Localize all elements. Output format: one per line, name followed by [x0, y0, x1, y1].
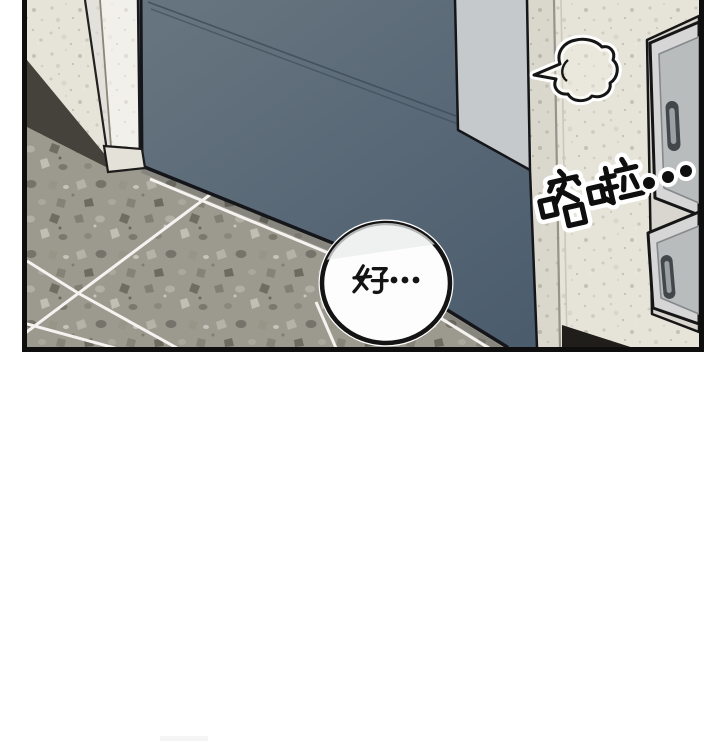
comic-panel-art: 喀啦… 好…	[0, 0, 720, 742]
drawer-handle-icon	[665, 101, 681, 152]
comic-page: 喀啦… 好…	[0, 0, 720, 742]
door-frame-foot	[104, 146, 145, 172]
page-gap-artifact	[160, 736, 208, 741]
dialogue-ellipsis-dots	[391, 277, 420, 284]
